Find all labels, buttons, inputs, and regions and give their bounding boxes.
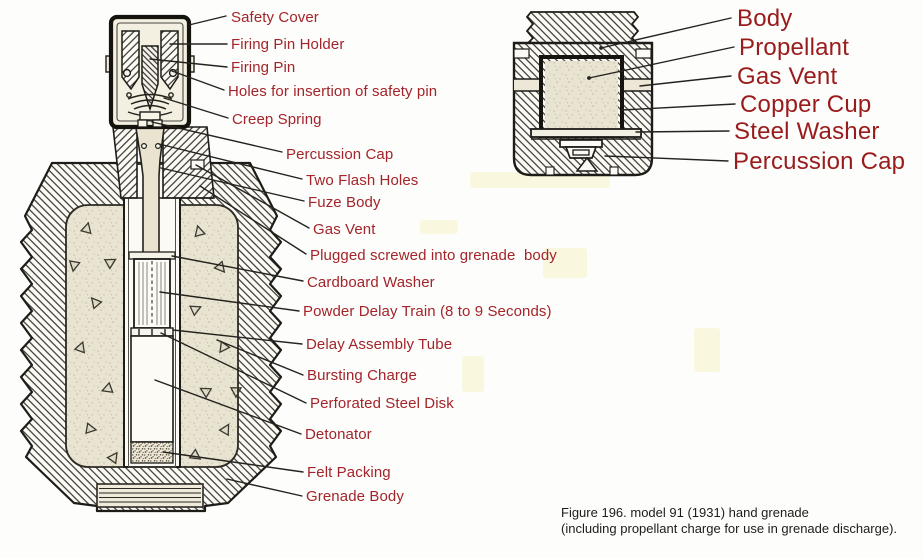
- caption-line-1: Figure 196. model 91 (1931) hand grenade: [561, 505, 897, 521]
- label-felt-packing: Felt Packing: [307, 464, 391, 481]
- label-delay-assembly-tube: Delay Assembly Tube: [306, 336, 452, 353]
- label-safety-pin-holes: Holes for insertion of safety pin: [228, 83, 437, 100]
- leader-steel-washer: [636, 131, 729, 132]
- label-gas-vent-right: Gas Vent: [737, 64, 837, 90]
- label-perforated-steel-disk: Perforated Steel Disk: [310, 395, 454, 412]
- label-two-flash-holes: Two Flash Holes: [306, 172, 418, 189]
- label-percussion-cap: Percussion Cap: [286, 146, 393, 163]
- leader-dot: [599, 46, 603, 50]
- bottom-notch: [546, 167, 554, 175]
- leader-safety-cover: [189, 16, 226, 25]
- label-powder-delay-train: Powder Delay Train (8 to 9 Seconds): [303, 303, 552, 320]
- label-bursting-charge: Bursting Charge: [307, 367, 417, 384]
- threaded-top: [527, 12, 638, 43]
- firing-pin-holder-prong: [122, 31, 139, 89]
- figure-caption: Figure 196. model 91 (1931) hand grenade…: [561, 505, 897, 537]
- safety-pin-hole: [170, 70, 177, 77]
- label-grenade-body: Grenade Body: [306, 488, 404, 505]
- label-copper-cup: Copper Cup: [740, 92, 871, 118]
- flash-hole: [142, 144, 147, 149]
- powder-delay-train: [134, 259, 170, 328]
- label-percussion-cap-right: Percussion Cap: [733, 149, 905, 175]
- label-cardboard-washer: Cardboard Washer: [307, 274, 435, 291]
- propellant-charge-section: [514, 12, 652, 175]
- detonator-chamber: [131, 336, 173, 442]
- steel-washer-bar: [531, 129, 641, 137]
- label-body: Body: [737, 6, 793, 32]
- label-firing-pin-holder: Firing Pin Holder: [231, 36, 344, 53]
- bottom-plug: [97, 484, 203, 507]
- bottom-notch: [610, 167, 618, 175]
- thread-relief-slot: [636, 49, 651, 58]
- label-fuze-body: Fuze Body: [308, 194, 381, 211]
- leader-dot: [587, 76, 591, 80]
- safety-pin-hole: [124, 70, 131, 77]
- leader-gas-vent-right: [640, 76, 731, 86]
- perforated-steel-disk: [131, 328, 173, 336]
- label-propellant: Propellant: [739, 35, 849, 61]
- label-gas-vent: Gas Vent: [313, 221, 376, 238]
- cardboard-washer: [129, 252, 175, 259]
- label-safety-cover: Safety Cover: [231, 9, 319, 26]
- label-detonator: Detonator: [305, 426, 372, 443]
- label-firing-pin: Firing Pin: [231, 59, 295, 76]
- caption-line-2: (including propellant charge for use in …: [561, 521, 897, 537]
- figure-canvas: Safety Cover Firing Pin Holder Firing Pi…: [0, 0, 923, 558]
- propellant-fill: [545, 61, 618, 132]
- thread-relief-slot: [514, 49, 529, 58]
- fuze-plug-right: [163, 127, 214, 198]
- label-plug: Plugged screwed into grenade body: [310, 247, 557, 264]
- label-steel-washer: Steel Washer: [734, 119, 880, 145]
- label-creep-spring: Creep Spring: [232, 111, 322, 128]
